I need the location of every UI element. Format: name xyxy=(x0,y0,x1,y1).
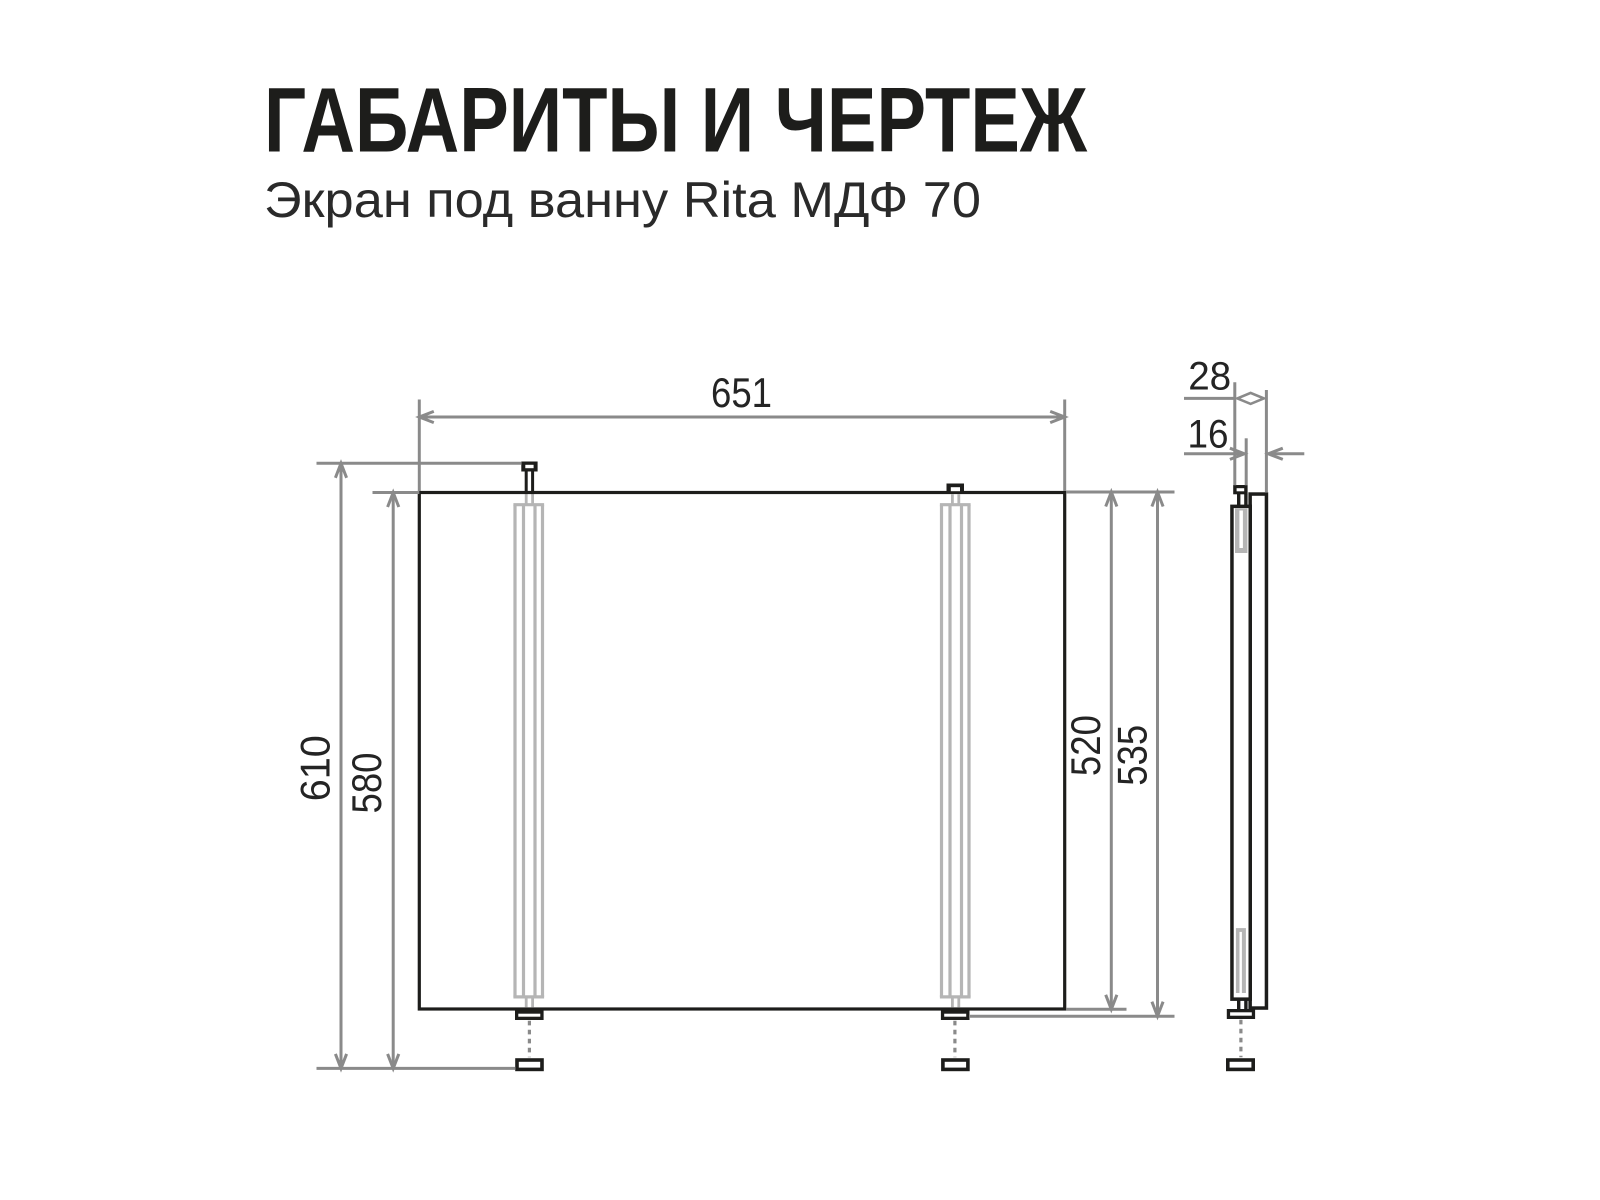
svg-text:28: 28 xyxy=(1188,355,1231,399)
svg-text:580: 580 xyxy=(343,753,390,814)
svg-text:16: 16 xyxy=(1188,413,1229,457)
svg-text:Экран под ванну Rita МДФ 70: Экран под ванну Rita МДФ 70 xyxy=(264,172,981,228)
svg-text:ГАБАРИТЫ И ЧЕРТЕЖ: ГАБАРИТЫ И ЧЕРТЕЖ xyxy=(264,70,1088,172)
svg-text:651: 651 xyxy=(711,369,772,416)
svg-text:520: 520 xyxy=(1062,715,1109,776)
svg-text:610: 610 xyxy=(292,735,339,801)
svg-text:535: 535 xyxy=(1108,725,1155,786)
